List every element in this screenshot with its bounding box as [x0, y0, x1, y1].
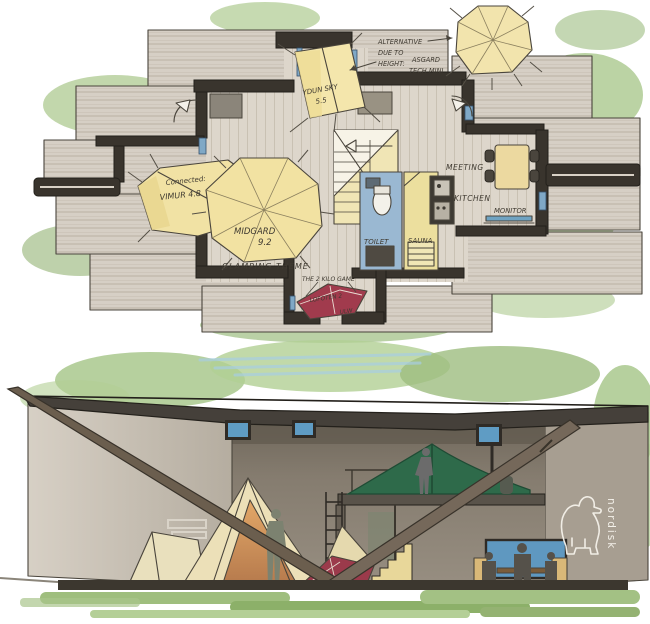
note-line-1: ALTERNATIVE [377, 38, 423, 46]
lofoten-callout-label: THE 2 KILO GAME [302, 276, 355, 283]
kitchen-label: KITCHEN [454, 194, 490, 203]
midgard-label: MIDGARD [234, 227, 276, 237]
entry-mat [210, 94, 242, 118]
sketch-page: YDUN SKY 5.5 Co [0, 0, 650, 624]
meeting-table [495, 145, 529, 189]
floor-slab [58, 580, 628, 590]
note-line-2: DUE TO [378, 49, 403, 57]
meeting-label: MEETING [446, 163, 484, 172]
section-view: nordisk [0, 340, 650, 618]
midgard-size-label: 9.2 [258, 238, 272, 248]
note-line-3: HEIGHT: [378, 60, 405, 68]
skylight-2 [292, 420, 316, 438]
drawing-canvas: YDUN SKY 5.5 Co [0, 0, 650, 624]
sauna-label: SAUNA [408, 237, 433, 245]
grass [20, 590, 640, 618]
toilet-label: TOILET [364, 238, 389, 246]
kitchen-unit [430, 176, 454, 224]
skylight-3 [476, 424, 502, 446]
note-alt-1: ASGARD [411, 56, 440, 64]
floor-plan: YDUN SKY 5.5 Co [22, 2, 645, 343]
theme-label: GLAMPING THEME [222, 262, 309, 271]
nordisk-logo-text: nordisk [605, 498, 617, 550]
monitor-label: MONITOR [494, 207, 527, 215]
note-alt-2: TECH MINI [409, 67, 443, 75]
skylight-1 [225, 420, 251, 440]
toilet-room [360, 172, 402, 270]
